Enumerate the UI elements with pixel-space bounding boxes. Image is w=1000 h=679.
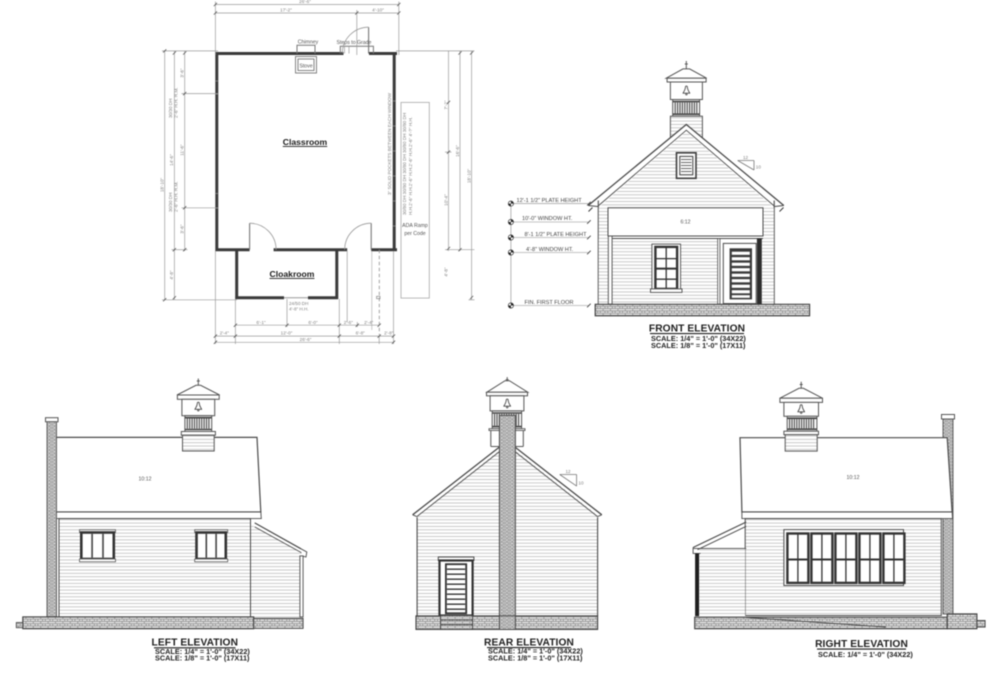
svg-text:Classroom: Classroom bbox=[283, 137, 328, 147]
svg-text:2'-8": 2'-8" bbox=[384, 331, 394, 336]
svg-text:30/30 DH: 30/30 DH bbox=[168, 99, 173, 118]
svg-text:30/30 DH: 30/30 DH bbox=[168, 193, 173, 212]
svg-text:12: 12 bbox=[743, 155, 749, 160]
svg-text:12: 12 bbox=[565, 469, 571, 474]
svg-text:SCALE: 1/8" = 1'-0" (17X11: SCALE: 1/8" = 1'-0" (17X11) bbox=[488, 654, 583, 663]
svg-text:6'-0": 6'-0" bbox=[308, 320, 318, 325]
svg-text:3'-6": 3'-6" bbox=[180, 68, 185, 78]
svg-text:SCALE: 1/8" = 1'-0" (17X11: SCALE: 1/8" = 1'-0" (17X11) bbox=[651, 341, 746, 350]
svg-text:24/50 DH: 24/50 DH bbox=[289, 301, 308, 306]
svg-text:18'-10": 18'-10" bbox=[466, 169, 471, 184]
svg-text:10'-4": 10'-4" bbox=[443, 194, 448, 206]
svg-text:3" SOLID POCKETS BETWEEN EACH: 3" SOLID POCKETS BETWEEN EACH WINDOW bbox=[387, 92, 392, 195]
svg-text:Steps to Grade: Steps to Grade bbox=[337, 40, 372, 46]
svg-text:10'-0" WINDOW HT.: 10'-0" WINDOW HT. bbox=[522, 216, 573, 222]
svg-text:10: 10 bbox=[756, 165, 762, 170]
svg-text:ADA Ramp: ADA Ramp bbox=[402, 223, 428, 229]
svg-text:SCALE: 1/4" = 1'-0" (34X22: SCALE: 1/4" = 1'-0" (34X22) bbox=[818, 650, 913, 659]
svg-text:Cloakroom: Cloakroom bbox=[270, 269, 315, 279]
svg-text:Stove: Stove bbox=[299, 64, 312, 70]
svg-text:FIN. FIRST FLOOR: FIN. FIRST FLOOR bbox=[525, 300, 574, 306]
svg-text:4'-8" WINDOW HT.: 4'-8" WINDOW HT. bbox=[526, 247, 574, 253]
svg-text:2'-4": 2'-4" bbox=[364, 320, 374, 325]
svg-text:8'-1 1/2" PLATE HEIGHT: 8'-1 1/2" PLATE HEIGHT bbox=[525, 232, 588, 238]
svg-text:11'-6": 11'-6" bbox=[180, 144, 185, 156]
svg-text:3'-6": 3'-6" bbox=[180, 224, 185, 234]
svg-text:4'-8": 4'-8" bbox=[169, 270, 174, 280]
svg-text:6:12: 6:12 bbox=[680, 220, 690, 226]
svg-text:6'-1": 6'-1" bbox=[256, 320, 266, 325]
svg-text:SCALE: 1/8" = 1'-0" (17X11: SCALE: 1/8" = 1'-0" (17X11) bbox=[155, 654, 250, 663]
svg-text:30/80 DH 30/80 DH 30/80 DH 30/: 30/80 DH 30/80 DH 30/80 DH 30/80 DH 30/8… bbox=[402, 113, 407, 215]
svg-text:2'-4": 2'-4" bbox=[220, 331, 230, 336]
svg-text:4'-8" H.H.: 4'-8" H.H. bbox=[289, 307, 309, 312]
svg-text:4'-8": 4'-8" bbox=[443, 267, 448, 277]
svg-text:2'-6": 2'-6" bbox=[344, 320, 354, 325]
svg-text:16'-6": 16'-6" bbox=[455, 145, 460, 157]
svg-text:10: 10 bbox=[578, 481, 584, 486]
svg-text:4'-10": 4'-10" bbox=[372, 8, 384, 13]
svg-text:10:12: 10:12 bbox=[139, 477, 152, 483]
svg-text:6'-8": 6'-8" bbox=[356, 331, 366, 336]
svg-text:Chimney: Chimney bbox=[298, 40, 319, 46]
svg-text:26'-6": 26'-6" bbox=[299, 0, 311, 4]
svg-text:12'-1 1/2" PLATE HEIGHT: 12'-1 1/2" PLATE HEIGHT bbox=[517, 198, 583, 204]
svg-text:17'-2": 17'-2" bbox=[280, 8, 292, 13]
svg-text:7'-2": 7'-2" bbox=[443, 100, 448, 110]
svg-text:12'-0": 12'-0" bbox=[281, 331, 293, 336]
svg-text:18'-10": 18'-10" bbox=[160, 178, 165, 193]
svg-text:14'-6": 14'-6" bbox=[169, 154, 174, 166]
svg-text:H.H.2'-6" H.H.2'-6" H.H.2'-6: H.H.2'-6" H.H.2'-6" H.H.2'-6" H.H.2'-6" … bbox=[408, 117, 413, 215]
svg-text:RIGHT ELEVATION: RIGHT ELEVATION bbox=[815, 639, 908, 650]
svg-text:10:12: 10:12 bbox=[847, 475, 860, 481]
svg-text:26'-6": 26'-6" bbox=[300, 337, 312, 342]
svg-text:FRONT ELEVATION: FRONT ELEVATION bbox=[649, 324, 745, 335]
svg-text:per Code: per Code bbox=[404, 231, 425, 237]
